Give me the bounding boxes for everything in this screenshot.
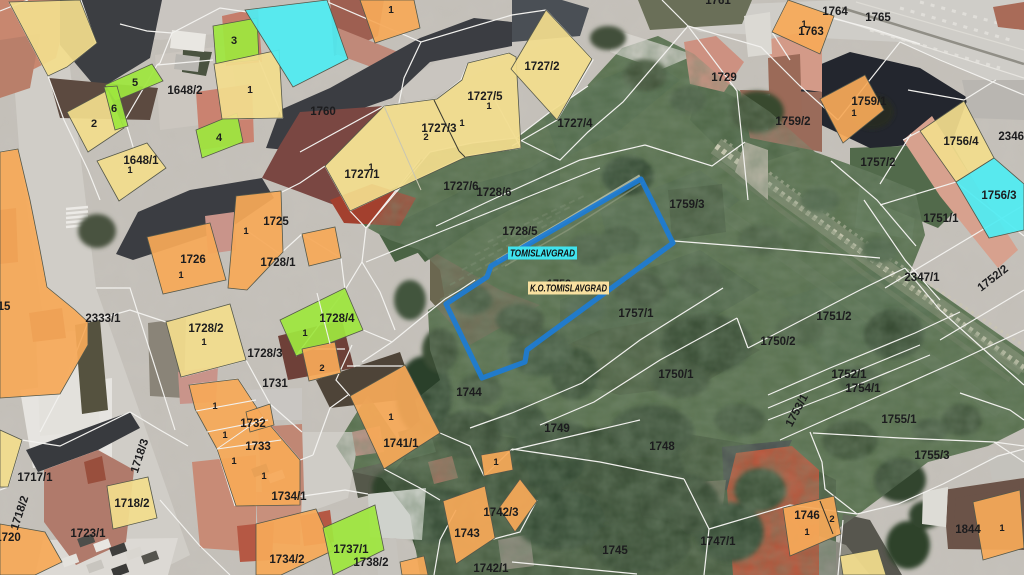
svg-text:1725: 1725 xyxy=(263,216,289,228)
svg-text:1737/1: 1737/1 xyxy=(333,544,369,556)
svg-text:1750/2: 1750/2 xyxy=(760,336,795,348)
svg-text:1729: 1729 xyxy=(711,72,737,84)
svg-text:1: 1 xyxy=(851,108,857,119)
svg-text:1761: 1761 xyxy=(705,0,731,7)
svg-text:1752/1: 1752/1 xyxy=(831,369,867,381)
svg-text:1750/1: 1750/1 xyxy=(658,369,694,381)
svg-text:1: 1 xyxy=(127,165,133,176)
svg-text:1731: 1731 xyxy=(262,378,288,390)
svg-text:1734/2: 1734/2 xyxy=(269,554,304,566)
svg-text:1755/3: 1755/3 xyxy=(914,450,949,462)
svg-text:1: 1 xyxy=(486,101,492,112)
svg-text:1: 1 xyxy=(999,523,1005,534)
svg-text:2: 2 xyxy=(91,118,97,130)
svg-text:1: 1 xyxy=(493,457,499,468)
svg-text:1726: 1726 xyxy=(180,254,206,266)
svg-text:1728/3: 1728/3 xyxy=(247,348,282,360)
svg-text:15: 15 xyxy=(0,301,11,313)
svg-text:1728/1: 1728/1 xyxy=(260,257,296,269)
svg-text:1754/1: 1754/1 xyxy=(845,383,881,395)
svg-text:1746: 1746 xyxy=(794,510,820,522)
svg-text:1728/6: 1728/6 xyxy=(476,187,511,199)
svg-text:1756/3: 1756/3 xyxy=(981,190,1016,202)
svg-text:1728/5: 1728/5 xyxy=(502,226,538,238)
svg-text:2347/1: 2347/1 xyxy=(904,272,940,284)
svg-text:1: 1 xyxy=(178,270,184,281)
svg-text:1757/2: 1757/2 xyxy=(860,157,895,169)
svg-text:1: 1 xyxy=(801,19,807,30)
svg-text:1742/1: 1742/1 xyxy=(473,563,509,575)
svg-text:1765: 1765 xyxy=(865,12,891,24)
svg-text:1757/1: 1757/1 xyxy=(618,308,654,320)
svg-text:1728/2: 1728/2 xyxy=(188,323,223,335)
svg-text:1: 1 xyxy=(804,527,810,538)
svg-text:TOMISLAVGRAD: TOMISLAVGRAD xyxy=(510,249,575,260)
svg-text:1734/1: 1734/1 xyxy=(271,491,307,503)
svg-text:K.O.TOMISLAVGRAD: K.O.TOMISLAVGRAD xyxy=(530,284,607,295)
svg-text:1648/2: 1648/2 xyxy=(167,85,202,97)
svg-text:1717/1: 1717/1 xyxy=(17,472,53,484)
svg-text:1727/4: 1727/4 xyxy=(557,118,593,130)
svg-text:1727/2: 1727/2 xyxy=(524,61,559,73)
svg-text:1: 1 xyxy=(388,412,394,423)
svg-text:3: 3 xyxy=(231,35,237,47)
svg-text:1844: 1844 xyxy=(955,524,981,536)
svg-text:1: 1 xyxy=(212,401,218,412)
svg-text:4: 4 xyxy=(216,132,223,144)
svg-text:2346/2: 2346/2 xyxy=(998,131,1024,143)
svg-text:2: 2 xyxy=(423,132,428,143)
svg-text:1747/1: 1747/1 xyxy=(700,536,736,548)
svg-text:1720: 1720 xyxy=(0,532,21,544)
svg-text:1733: 1733 xyxy=(245,441,271,453)
svg-text:1723/1: 1723/1 xyxy=(70,528,106,540)
svg-text:1: 1 xyxy=(368,162,374,173)
svg-text:1728/4: 1728/4 xyxy=(319,313,355,325)
svg-text:1759/3: 1759/3 xyxy=(669,199,704,211)
svg-text:1732: 1732 xyxy=(240,418,266,430)
svg-text:1760: 1760 xyxy=(310,106,336,118)
svg-text:1756/4: 1756/4 xyxy=(943,136,979,148)
svg-text:1727/1: 1727/1 xyxy=(344,169,380,181)
svg-text:1743: 1743 xyxy=(454,528,480,540)
svg-text:6: 6 xyxy=(111,103,117,115)
svg-text:1: 1 xyxy=(261,471,267,482)
svg-text:1: 1 xyxy=(247,85,253,96)
svg-text:2333/1: 2333/1 xyxy=(85,313,121,325)
svg-text:1751/1: 1751/1 xyxy=(923,213,959,225)
svg-text:1: 1 xyxy=(231,456,237,467)
svg-text:1: 1 xyxy=(243,226,249,237)
svg-text:1759/2: 1759/2 xyxy=(775,116,810,128)
svg-text:1: 1 xyxy=(459,118,465,129)
svg-text:1751/2: 1751/2 xyxy=(816,311,851,323)
svg-text:1764: 1764 xyxy=(822,6,848,18)
svg-text:2: 2 xyxy=(829,514,834,525)
svg-text:1718/2: 1718/2 xyxy=(114,498,149,510)
svg-text:1: 1 xyxy=(388,5,394,16)
svg-text:1744: 1744 xyxy=(456,387,482,399)
svg-text:1741/1: 1741/1 xyxy=(383,438,419,450)
svg-text:1742/3: 1742/3 xyxy=(483,507,518,519)
svg-text:1755/1: 1755/1 xyxy=(881,414,917,426)
svg-text:1759/1: 1759/1 xyxy=(851,96,887,108)
svg-text:1748: 1748 xyxy=(649,441,675,453)
svg-text:2: 2 xyxy=(319,363,324,374)
svg-text:1749: 1749 xyxy=(544,423,570,435)
svg-text:1: 1 xyxy=(201,337,207,348)
svg-text:1: 1 xyxy=(302,328,308,339)
svg-text:1745: 1745 xyxy=(602,545,628,557)
svg-text:1727/5: 1727/5 xyxy=(467,91,503,103)
svg-text:1727/6: 1727/6 xyxy=(443,181,478,193)
svg-text:1: 1 xyxy=(222,430,228,441)
svg-text:1738/2: 1738/2 xyxy=(353,557,388,569)
svg-text:5: 5 xyxy=(132,77,138,89)
